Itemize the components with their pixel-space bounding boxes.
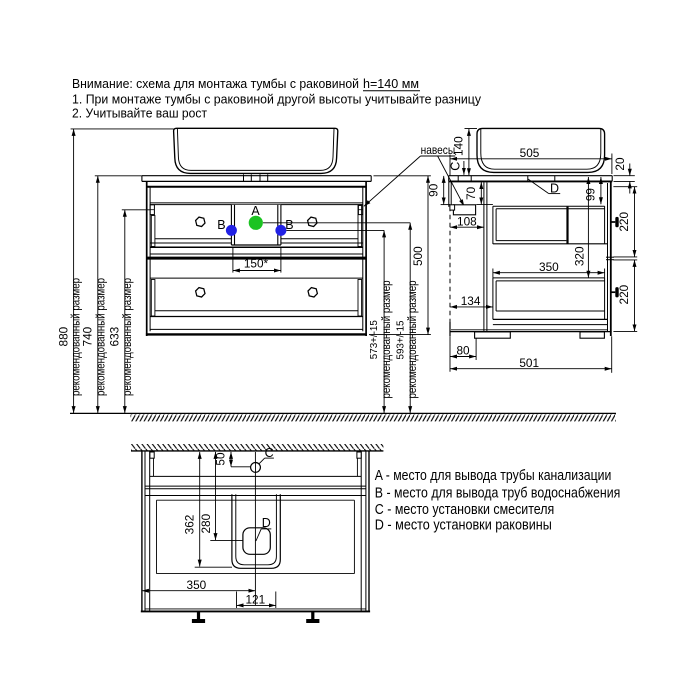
svg-text:320: 320 [572, 246, 586, 266]
svg-text:573+/-15: 573+/-15 [369, 320, 380, 359]
svg-text:99: 99 [584, 188, 598, 201]
svg-text:70: 70 [464, 186, 478, 200]
svg-text:108: 108 [457, 214, 477, 228]
svg-text:134: 134 [461, 294, 481, 308]
svg-text:121: 121 [245, 593, 265, 607]
svg-text:рекомендованный размер: рекомендованный размер [122, 278, 134, 396]
svg-text:рекомендованный размер: рекомендованный размер [381, 281, 393, 399]
svg-text:633: 633 [108, 326, 122, 346]
svg-text:150*: 150* [244, 256, 269, 270]
svg-text:880: 880 [56, 326, 70, 346]
svg-text:рекомендованный размер: рекомендованный размер [95, 278, 107, 396]
svg-text:505: 505 [520, 146, 540, 160]
svg-text:C - место установки смесителя: C - место установки смесителя [375, 502, 555, 518]
svg-text:740: 740 [81, 326, 95, 346]
svg-text:20: 20 [613, 157, 627, 171]
svg-text:593+/-15: 593+/-15 [396, 320, 407, 359]
svg-text:D - место установки раковины: D - место установки раковины [375, 517, 552, 533]
svg-text:220: 220 [617, 284, 631, 304]
svg-text:рекомендованный размер: рекомендованный размер [407, 281, 419, 399]
svg-text:h=140 мм: h=140 мм [363, 77, 419, 91]
svg-text:1. При монтаже тумбы с раковин: 1. При монтаже тумбы с раковиной другой … [72, 92, 482, 106]
svg-text:C: C [449, 162, 463, 171]
svg-text:A: A [251, 204, 260, 218]
svg-text:90: 90 [426, 183, 440, 197]
svg-text:D: D [262, 516, 271, 530]
svg-text:B: B [217, 218, 225, 232]
svg-text:80: 80 [456, 344, 470, 358]
svg-text:Внимание: схема для монтажа ту: Внимание: схема для монтажа тумбы с рако… [72, 77, 359, 91]
svg-text:350: 350 [539, 260, 559, 274]
svg-text:500: 500 [411, 246, 425, 266]
svg-text:140: 140 [452, 136, 466, 156]
svg-text:362: 362 [182, 515, 196, 535]
svg-text:501: 501 [519, 356, 539, 370]
svg-text:2. Учитывайте ваш рост: 2. Учитывайте ваш рост [72, 107, 207, 121]
svg-text:280: 280 [199, 513, 213, 533]
svg-text:A - место для вывода трубы кан: A - место для вывода трубы канализации [375, 468, 612, 484]
svg-text:350: 350 [187, 578, 207, 592]
svg-text:B: B [285, 218, 293, 232]
svg-text:220: 220 [617, 212, 631, 232]
svg-text:B - место для вывода труб водо: B - место для вывода труб водоснабжения [375, 486, 621, 502]
